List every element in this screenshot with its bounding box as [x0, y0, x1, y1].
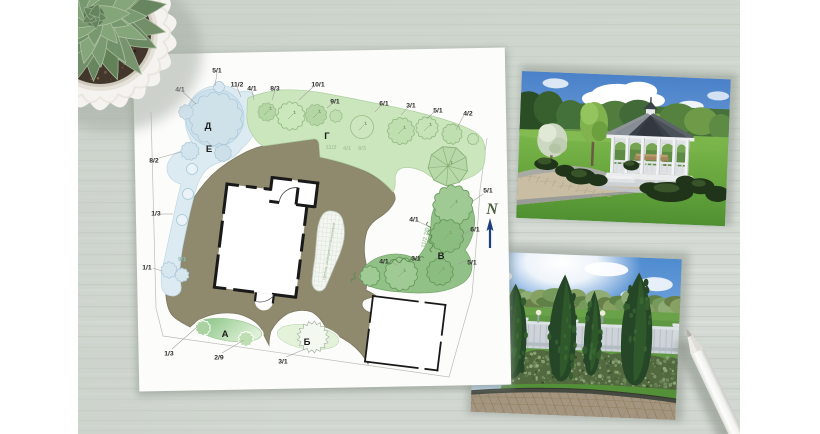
svg-text:6/1: 6/1 — [470, 227, 480, 234]
svg-text:1/3: 1/3 — [164, 351, 174, 358]
svg-text:8/2: 8/2 — [149, 158, 159, 165]
svg-text:5/1: 5/1 — [212, 68, 222, 75]
svg-text:Д: Д — [205, 121, 212, 132]
svg-text:11/2: 11/2 — [231, 82, 244, 89]
svg-text:3/1: 3/1 — [411, 256, 421, 263]
svg-text:5/1: 5/1 — [467, 260, 477, 267]
svg-text:Е: Е — [206, 144, 212, 155]
svg-text:1/1: 1/1 — [142, 265, 152, 272]
svg-text:Г: Г — [324, 131, 330, 142]
svg-text:N: N — [485, 201, 499, 218]
svg-text:3/1: 3/1 — [406, 103, 416, 110]
svg-text:4/1: 4/1 — [409, 217, 419, 224]
svg-text:10/1: 10/1 — [311, 82, 324, 89]
svg-text:5/1: 5/1 — [433, 108, 443, 115]
svg-text:1/3: 1/3 — [151, 211, 161, 218]
svg-text:6/1: 6/1 — [379, 101, 389, 108]
svg-text:8/3: 8/3 — [358, 146, 367, 152]
svg-text:4/2: 4/2 — [463, 111, 473, 118]
svg-text:9/1: 9/1 — [178, 257, 187, 263]
svg-text:5/1: 5/1 — [483, 188, 493, 195]
svg-text:Б: Б — [304, 337, 311, 348]
svg-text:4/1: 4/1 — [247, 86, 257, 93]
svg-text:В: В — [438, 251, 445, 262]
svg-text:А: А — [222, 329, 229, 340]
svg-text:9/1: 9/1 — [330, 99, 340, 106]
svg-text:4/1: 4/1 — [343, 146, 352, 152]
svg-text:3/1: 3/1 — [278, 359, 288, 366]
svg-text:2/9: 2/9 — [214, 355, 224, 362]
svg-text:8/3: 8/3 — [270, 86, 280, 93]
svg-text:4/1: 4/1 — [379, 259, 389, 266]
svg-text:11/2: 11/2 — [326, 145, 337, 151]
